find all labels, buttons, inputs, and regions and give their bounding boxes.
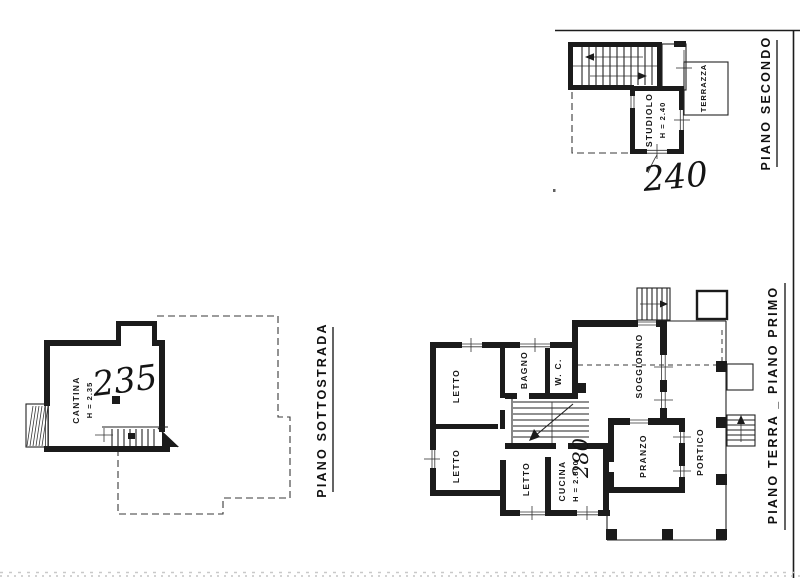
terra-east-stair bbox=[727, 415, 755, 446]
soggiorno-walls bbox=[572, 320, 673, 418]
plan-piano-sottostrada: 235 CANTINA H = 2.35 PIANO SOTTOSTRADA bbox=[26, 316, 333, 514]
room-terrazza: TERRAZZA bbox=[684, 62, 728, 115]
room-label-pranzo: PRANZO bbox=[638, 434, 648, 478]
room-label-wc: W. C. bbox=[553, 358, 563, 385]
room-label-cantina: CANTINA bbox=[71, 376, 81, 423]
room-studiolo: STUDIOLO H = 2.40 bbox=[630, 86, 690, 159]
title-piano-terra-primo-text: PIANO TERRA _ PIANO PRIMO bbox=[766, 286, 780, 525]
floorplan-sheet: STUDIOLO H = 2.40 TERRAZZA 240 PIANO SEC… bbox=[0, 0, 800, 578]
title-piano-sottostrada: PIANO SOTTOSTRADA bbox=[315, 322, 333, 497]
room-label-soggiorno: SOGGIORNO bbox=[634, 333, 644, 398]
handwritten-240: 240 bbox=[640, 154, 709, 200]
room-label-terrazza: TERRAZZA bbox=[699, 64, 708, 112]
handwritten-cucina-height: 280 bbox=[569, 438, 593, 479]
room-label-cucina: CUCINA bbox=[557, 461, 567, 502]
room-label-studiolo-height: H = 2.40 bbox=[658, 102, 667, 139]
title-piano-secondo: PIANO SECONDO bbox=[759, 36, 777, 171]
room-label-letto-sw: LETTO bbox=[451, 449, 461, 483]
title-piano-secondo-text: PIANO SECONDO bbox=[759, 36, 773, 171]
title-piano-sottostrada-text: PIANO SOTTOSTRADA bbox=[315, 322, 329, 497]
secondo-staircase bbox=[573, 47, 657, 85]
room-label-letto-nw: LETTO bbox=[451, 369, 461, 403]
room-label-bagno: BAGNO bbox=[519, 351, 529, 389]
secondo-landing bbox=[662, 44, 692, 90]
room-label-portico: PORTICO bbox=[695, 428, 705, 476]
sottostrada-footprint-dashed bbox=[118, 316, 290, 514]
scanned-floorplan-page: { "sheet": { "paper_color": "#ffffff", "… bbox=[0, 0, 800, 578]
room-label-cantina-height: H = 2.35 bbox=[85, 382, 94, 419]
terra-central-staircase bbox=[512, 399, 589, 443]
plan-piano-terra-primo: LETTO BAGNO W. C. SOGGIORNO LETTO LETTO … bbox=[424, 283, 785, 540]
handwritten-secondo-height: 240 bbox=[640, 154, 709, 200]
pranzo-walls bbox=[608, 418, 691, 493]
cantina-window-well bbox=[26, 404, 49, 447]
room-label-letto-s: LETTO bbox=[521, 462, 531, 496]
plan-piano-secondo: STUDIOLO H = 2.40 TERRAZZA 240 PIANO SEC… bbox=[568, 36, 777, 200]
title-piano-terra-primo: PIANO TERRA _ PIANO PRIMO bbox=[766, 283, 785, 530]
handwritten-cantina-height: 235 bbox=[89, 357, 159, 405]
cantina-staircase bbox=[95, 427, 179, 447]
secondo-dashed-outline bbox=[572, 92, 631, 153]
terra-north-stair bbox=[637, 288, 670, 320]
room-label-studiolo: STUDIOLO bbox=[644, 93, 654, 147]
